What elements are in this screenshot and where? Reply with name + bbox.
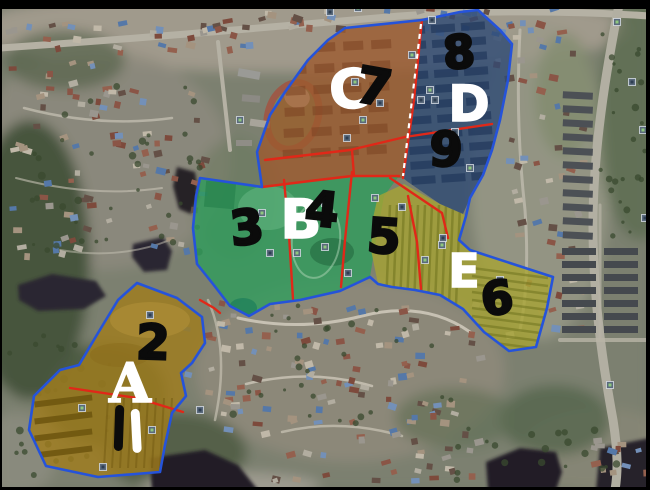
photo-marker-icon[interactable]: [322, 244, 329, 251]
photo-marker-icon[interactable]: [607, 382, 614, 389]
photo-marker-icon[interactable]: [79, 405, 86, 412]
red-divider-line: [200, 300, 220, 313]
frame-edge-top: [0, 0, 650, 9]
photo-marker-icon[interactable]: [399, 204, 406, 211]
photo-marker-icon[interactable]: [429, 17, 436, 24]
photo-marker-icon[interactable]: [440, 235, 447, 242]
photo-marker-icon[interactable]: [427, 87, 434, 94]
photo-marker-icon[interactable]: [197, 407, 204, 414]
frame-edge-left: [0, 0, 2, 490]
photo-marker-icon[interactable]: [629, 79, 636, 86]
photo-marker-icon[interactable]: [352, 79, 359, 86]
photo-marker-icon[interactable]: [409, 52, 416, 59]
photo-marker-icon[interactable]: [377, 100, 384, 107]
photo-marker-icon[interactable]: [452, 129, 459, 136]
photo-marker-icon[interactable]: [100, 464, 107, 471]
region-C-overlay: [257, 20, 422, 187]
photo-marker-icon[interactable]: [467, 165, 474, 172]
photo-marker-icon[interactable]: [322, 200, 329, 207]
photo-marker-icon[interactable]: [237, 117, 244, 124]
photo-marker-icon[interactable]: [149, 427, 156, 434]
photo-marker-icon[interactable]: [147, 312, 154, 319]
frame-edge-right: [646, 0, 650, 490]
photo-marker-icon[interactable]: [418, 97, 425, 104]
satellite-map[interactable]: C78D93B45E62A: [0, 0, 650, 490]
photo-marker-icon[interactable]: [345, 270, 352, 277]
photo-marker-icon[interactable]: [259, 210, 266, 217]
photo-marker-icon[interactable]: [360, 117, 367, 124]
zone-overlay-layer: [0, 0, 650, 490]
photo-marker-icon[interactable]: [294, 250, 301, 257]
photo-marker-icon[interactable]: [372, 195, 379, 202]
photo-marker-icon[interactable]: [432, 97, 439, 104]
photo-marker-icon[interactable]: [614, 19, 621, 26]
photo-marker-icon[interactable]: [327, 9, 334, 16]
photo-marker-icon[interactable]: [439, 242, 446, 249]
photo-marker-icon[interactable]: [497, 277, 504, 284]
photo-marker-icon[interactable]: [267, 250, 274, 257]
photo-marker-icon[interactable]: [344, 135, 351, 142]
photo-marker-icon[interactable]: [422, 257, 429, 264]
